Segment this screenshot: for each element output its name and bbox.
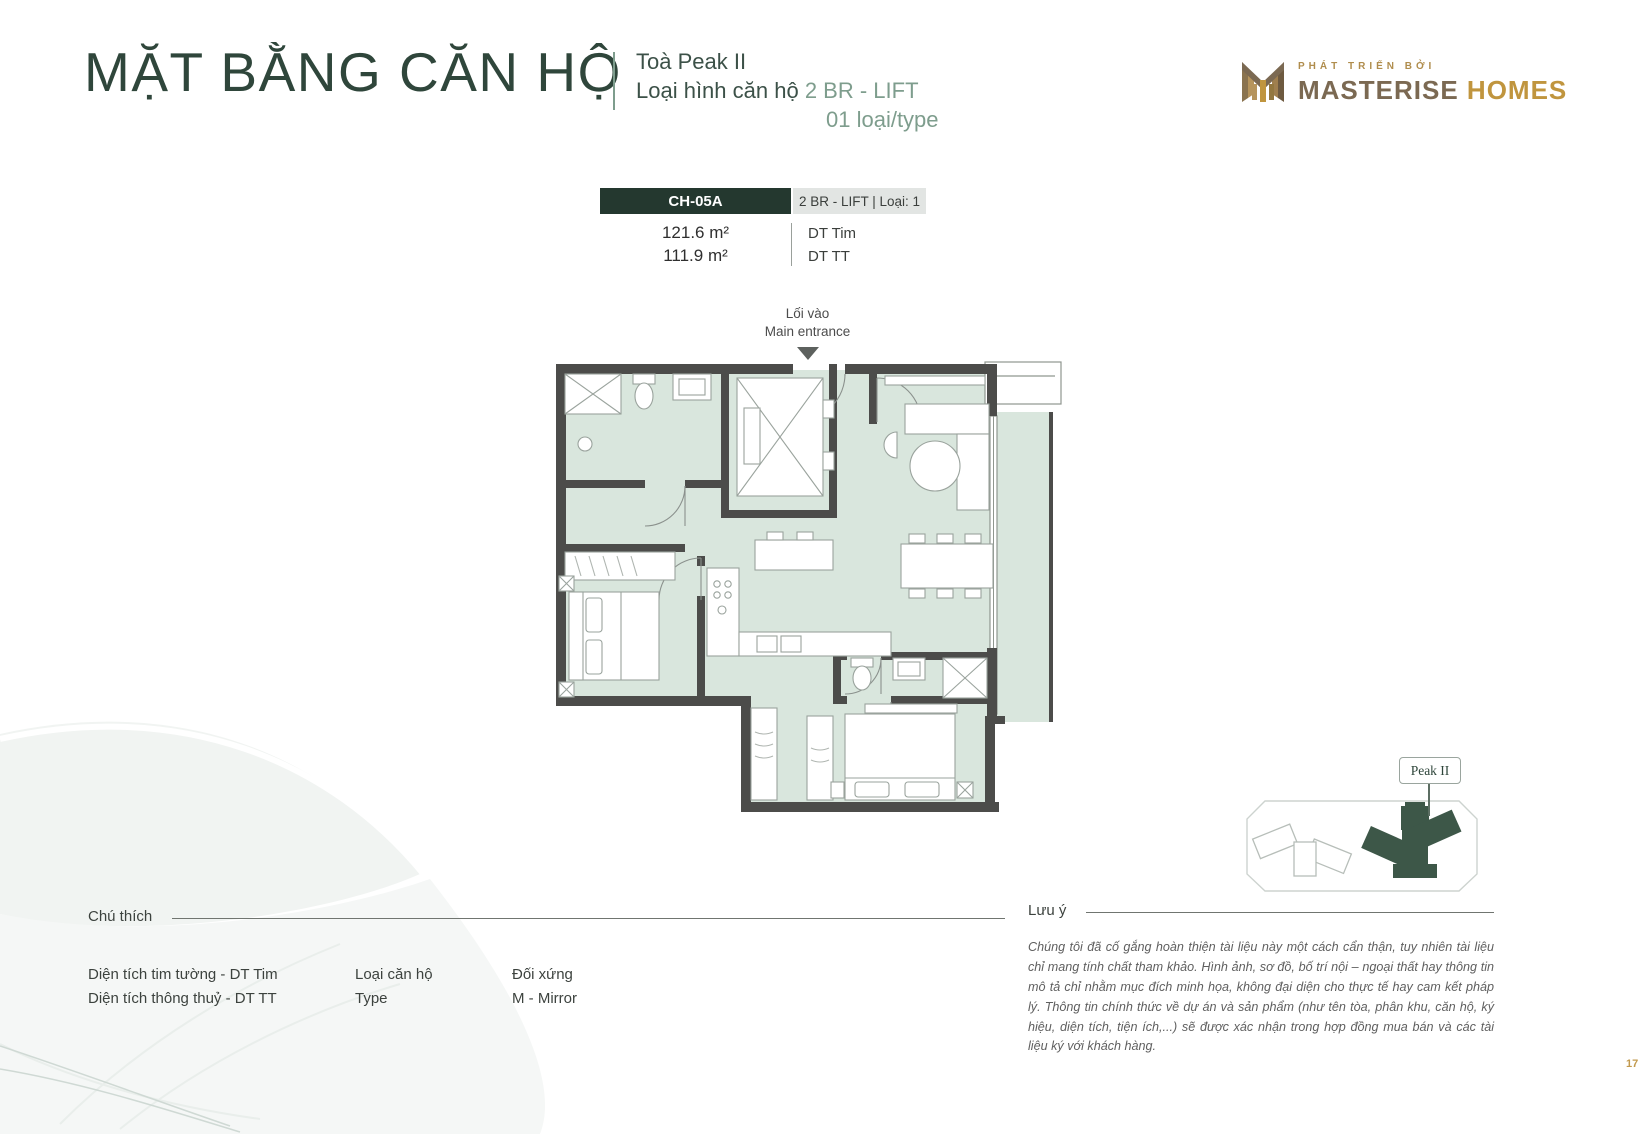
peak-label-connector — [1428, 783, 1430, 816]
legend-heading-row: Chú thích — [88, 908, 1005, 925]
logo-tagline: PHÁT TRIỂN BỞI — [1298, 62, 1567, 72]
page-number: 17 — [1626, 1058, 1638, 1070]
tower-name: Toà Peak II — [636, 47, 939, 76]
area-value-tim: 121.6 m² — [600, 221, 791, 244]
site-mini-map — [1243, 798, 1481, 894]
legend-col-areas: Diện tích tim tường - DT Tim Diện tích t… — [88, 963, 278, 1011]
logo-brand-primary: MASTERISE — [1298, 75, 1459, 105]
note-body: Chúng tôi đã cố gắng hoàn thiện tài liệu… — [1028, 938, 1494, 1057]
legend-col-type: Loại căn hộ Type — [355, 963, 433, 1011]
legend-mirror-en: M - Mirror — [512, 987, 577, 1011]
legend-mirror-vi: Đối xứng — [512, 963, 577, 987]
note-heading: Lưu ý — [1028, 902, 1066, 919]
legend-heading: Chú thích — [88, 908, 152, 925]
unit-type-line: Loại hình căn hộ 2 BR - LIFT — [636, 76, 939, 105]
area-label-tim: DT Tim — [808, 222, 926, 245]
unit-info-card: CH-05A 2 BR - LIFT | Loại: 1 121.6 m² 11… — [600, 188, 926, 268]
unit-type-label: Loại hình căn hộ — [636, 78, 799, 103]
unit-type-cell: 2 BR - LIFT | Loại: 1 — [793, 188, 926, 214]
brochure-page: MẶT BẰNG CĂN HỘ Toà Peak II Loại hình că… — [0, 0, 1645, 1134]
unit-type-value: 2 BR - LIFT — [805, 78, 919, 103]
peak-tower-label: Peak II — [1399, 757, 1461, 784]
legend-rule — [172, 918, 1005, 919]
note-rule — [1086, 912, 1494, 913]
masterise-homes-logo: PHÁT TRIỂN BỞI MASTERISE HOMES — [1238, 56, 1567, 108]
entrance-label-vi: Lối vào — [735, 305, 880, 323]
page-title: MẶT BẰNG CĂN HỘ — [84, 40, 622, 104]
masterise-logo-icon — [1238, 56, 1288, 108]
legend-type-en: Type — [355, 987, 433, 1011]
legend-dt-tim: Diện tích tim tường - DT Tim — [88, 963, 278, 987]
area-label-tt: DT TT — [808, 245, 926, 268]
title-divider — [613, 52, 615, 110]
logo-brand: MASTERISE HOMES — [1298, 77, 1567, 103]
floor-plan-drawing — [545, 352, 1065, 814]
logo-brand-secondary: HOMES — [1467, 75, 1567, 105]
page-subtitle: Toà Peak II Loại hình căn hộ 2 BR - LIFT… — [636, 47, 939, 134]
note-heading-row: Lưu ý — [1028, 902, 1494, 919]
legend-col-mirror: Đối xứng M - Mirror — [512, 963, 577, 1011]
legend-type-vi: Loại căn hộ — [355, 963, 433, 987]
type-count: 01 loại/type — [636, 105, 939, 134]
legend-dt-tt: Diện tích thông thuỷ - DT TT — [88, 987, 278, 1011]
unit-code-cell: CH-05A — [600, 188, 791, 214]
area-value-tt: 111.9 m² — [600, 244, 791, 267]
entrance-label-en: Main entrance — [735, 323, 880, 341]
